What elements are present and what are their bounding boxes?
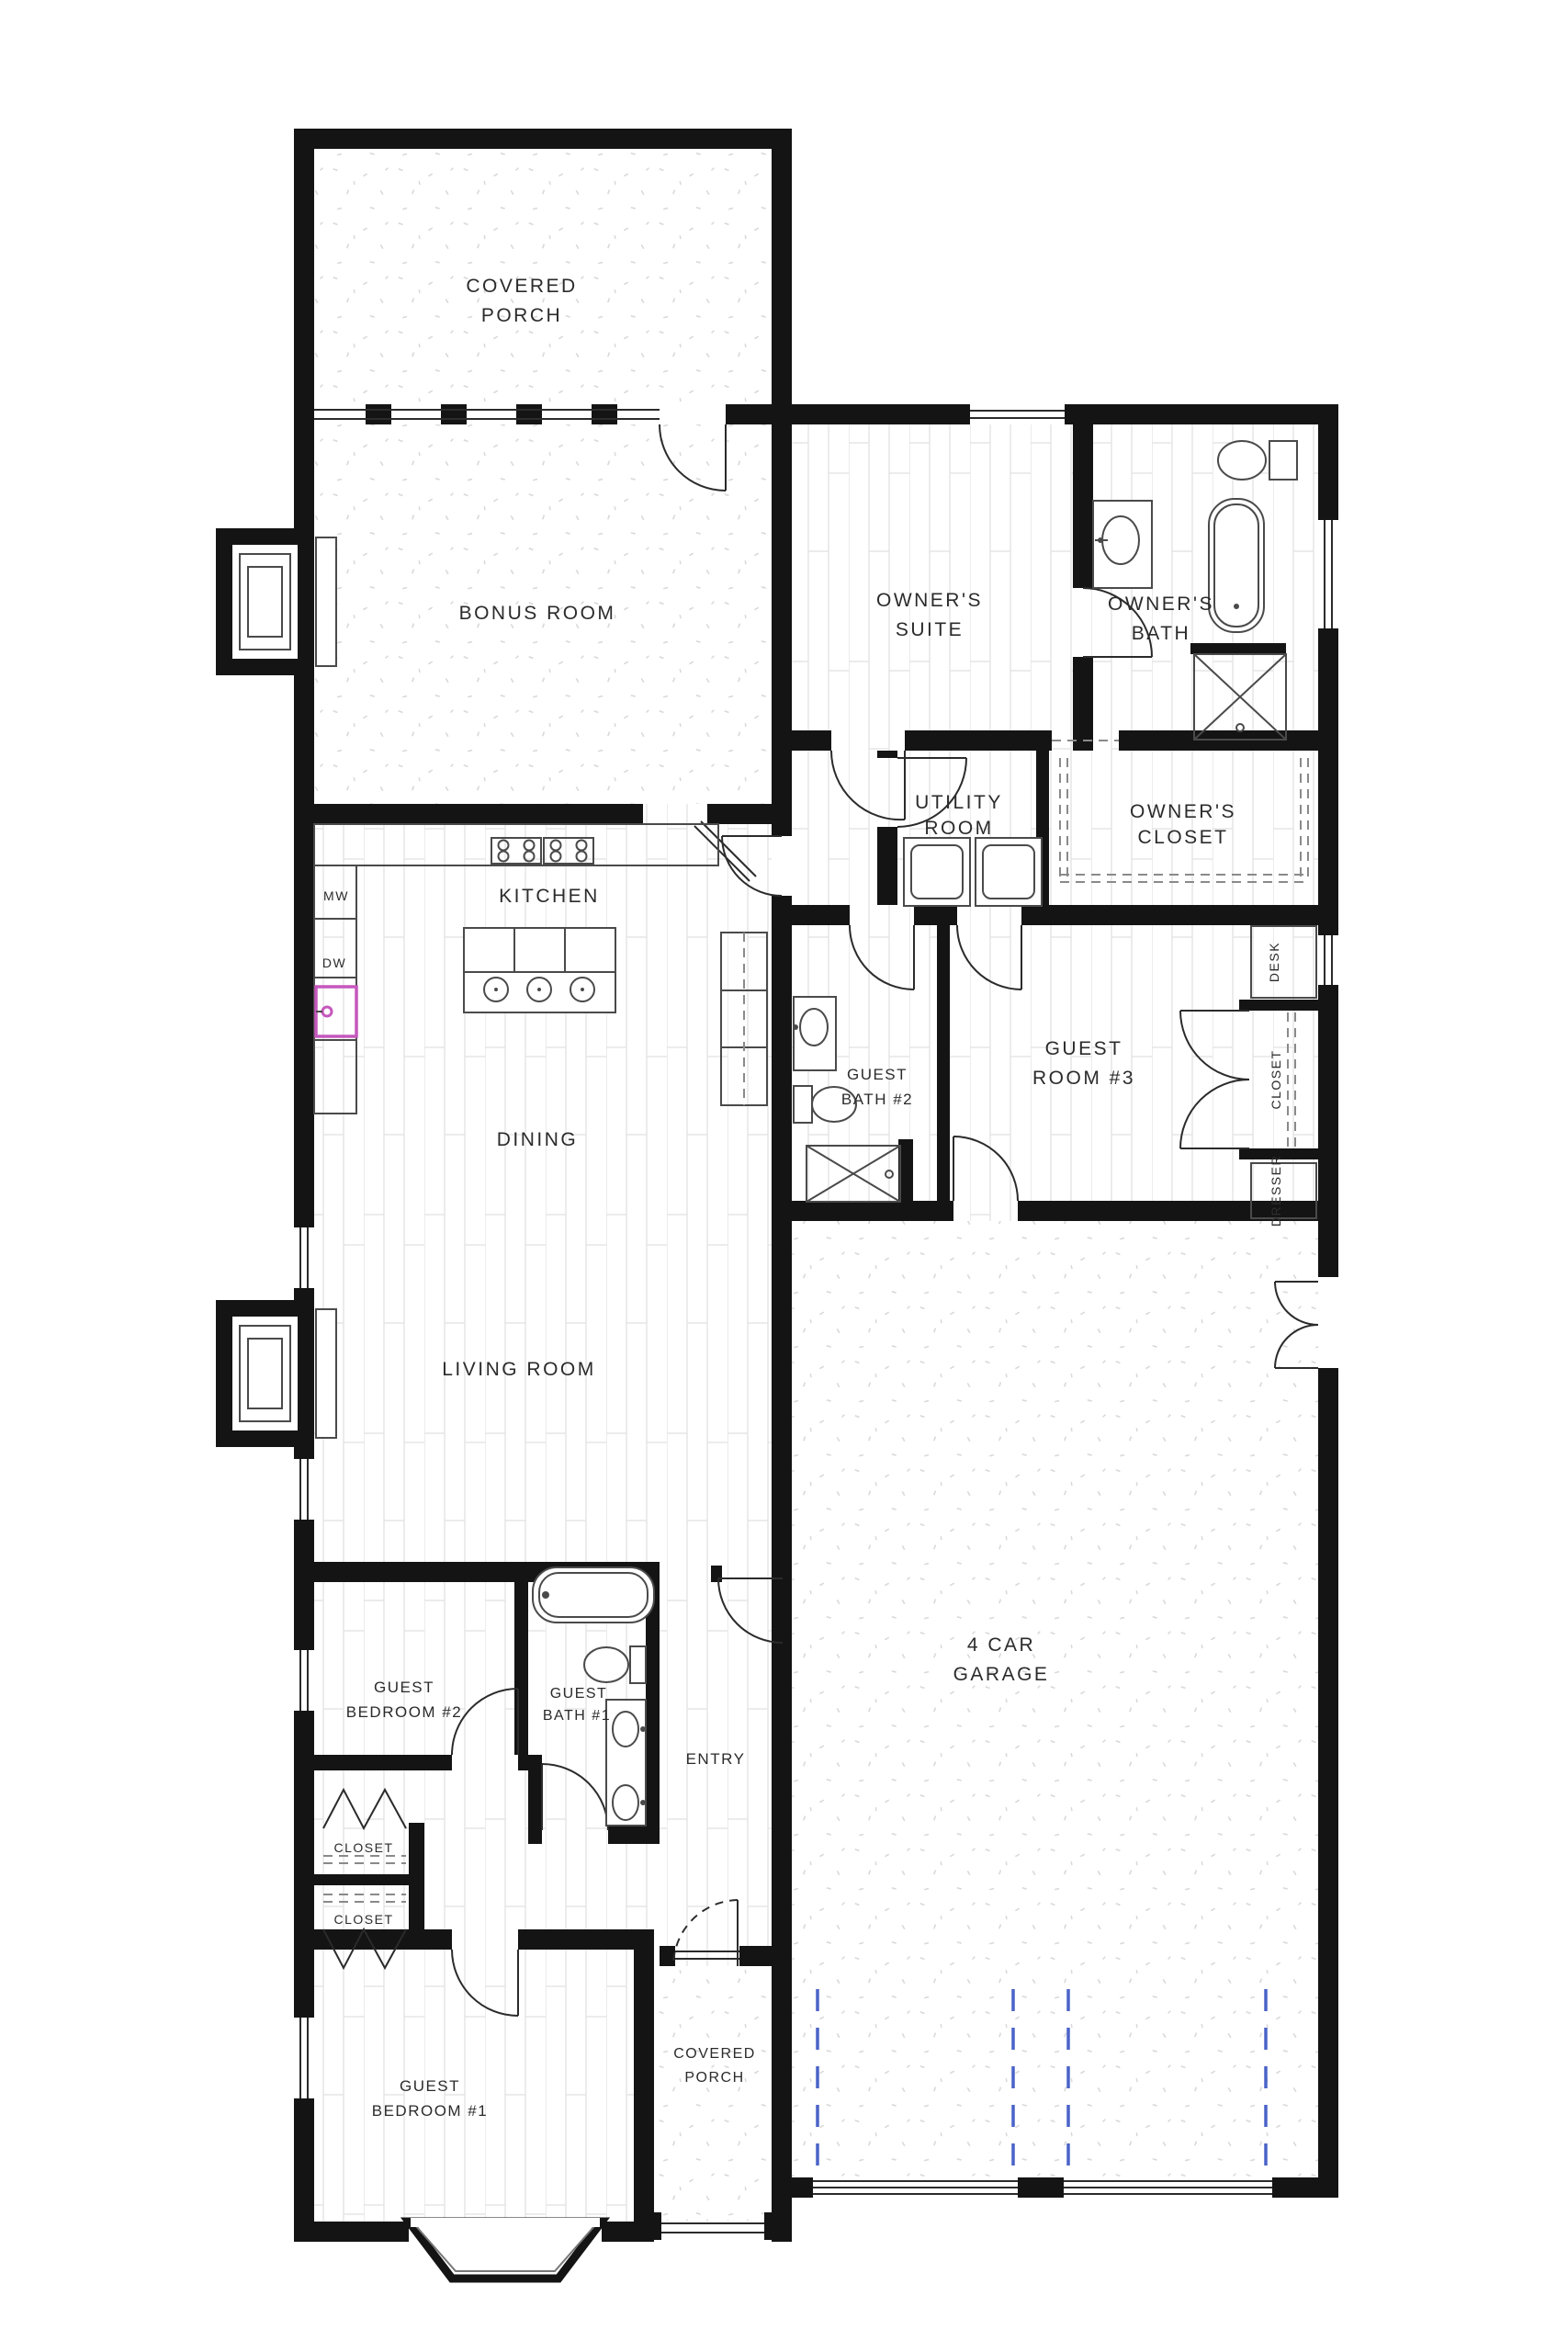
label-dresser: DRESSER <box>1269 1155 1283 1227</box>
label-guest-bath-1b: BATH #1 <box>543 1708 611 1724</box>
floor-covered-porch-bottom <box>654 1966 772 2219</box>
label-guest-bedroom-2: GUEST <box>374 1679 434 1696</box>
label-guest-bath-1: GUEST <box>550 1686 608 1702</box>
label-dining: DINING <box>497 1129 579 1150</box>
bathtub-owners-bath <box>1209 499 1264 632</box>
label-closet-hall: CLOSET <box>333 1840 393 1855</box>
label-guest-room-3b: ROOM #3 <box>1032 1068 1135 1089</box>
floor-garage <box>792 1221 1318 2177</box>
window-living-room-upper <box>294 1222 314 1294</box>
label-covered-porch-top: COVERED <box>466 276 577 297</box>
label-closet-bedroom: CLOSET <box>333 1912 393 1927</box>
label-utility-room-2: ROOM <box>924 818 993 839</box>
window-living-room-lower <box>294 1453 314 1525</box>
toilet-guest-bath-1 <box>584 1646 646 1683</box>
label-guest-bedroom-1b: BEDROOM #1 <box>372 2102 488 2120</box>
vanity-sink-guest-bath-2 <box>793 997 836 1070</box>
label-owners-closet-2: CLOSET <box>1137 827 1228 848</box>
bay-window <box>409 2218 602 2278</box>
label-owners-bath-2: BATH <box>1132 623 1190 644</box>
label-guest-bath-2b: BATH #2 <box>841 1091 913 1108</box>
label-covered-porch-bottom: COVERED <box>673 2046 756 2062</box>
fireplace-bonus-room <box>216 528 336 675</box>
window-owners-bath-right <box>1318 514 1338 634</box>
label-guest-bath-2: GUEST <box>847 1066 908 1083</box>
floor-plan-canvas: COVERED PORCH BONUS ROOM OWNER'S SUITE O… <box>0 0 1568 2352</box>
window-desk-right <box>1318 930 1338 990</box>
label-kitchen: KITCHEN <box>499 886 600 907</box>
label-guest-bedroom-1: GUEST <box>400 2077 460 2095</box>
label-desk: DESK <box>1267 942 1281 982</box>
window-guest-bedroom-2 <box>294 1645 314 1716</box>
label-living-room: LIVING ROOM <box>442 1359 596 1380</box>
bathtub-guest-bath-1 <box>533 1567 654 1623</box>
label-garage: 4 CAR <box>967 1634 1035 1656</box>
vanity-sink-owners-bath <box>1093 501 1152 588</box>
kitchen-island <box>464 928 615 1012</box>
window-guest-bedroom-1 <box>294 2012 314 2104</box>
label-guest-room-3: GUEST <box>1045 1038 1123 1059</box>
label-bonus-room: BONUS ROOM <box>459 603 616 624</box>
floor-textures <box>314 149 1318 2222</box>
label-guest-bedroom-2b: BEDROOM #2 <box>346 1703 462 1721</box>
label-covered-porch-top-2: PORCH <box>481 305 562 326</box>
label-entry: ENTRY <box>686 1750 746 1768</box>
porch-rails-bottom <box>661 2223 764 2233</box>
vanity-sinks-guest-bath-1 <box>606 1700 646 1826</box>
toilet-owners-bath <box>1218 441 1297 480</box>
label-garage-2: GARAGE <box>953 1664 1050 1685</box>
label-owners-closet: OWNER'S <box>1130 801 1236 822</box>
label-owners-suite-2: SUITE <box>896 619 964 640</box>
label-mw: MW <box>323 888 349 903</box>
label-closet-guest-room-3: CLOSET <box>1269 1049 1283 1109</box>
window-owners-suite-top <box>964 404 1070 424</box>
label-covered-porch-bottom-2: PORCH <box>684 2070 744 2086</box>
label-owners-bath: OWNER'S <box>1108 594 1214 615</box>
label-dw: DW <box>322 955 346 970</box>
label-utility-room: UTILITY <box>915 792 1003 813</box>
island-stools <box>484 978 594 1001</box>
fireplace-living-room <box>216 1300 336 1447</box>
label-owners-suite: OWNER'S <box>876 590 983 611</box>
